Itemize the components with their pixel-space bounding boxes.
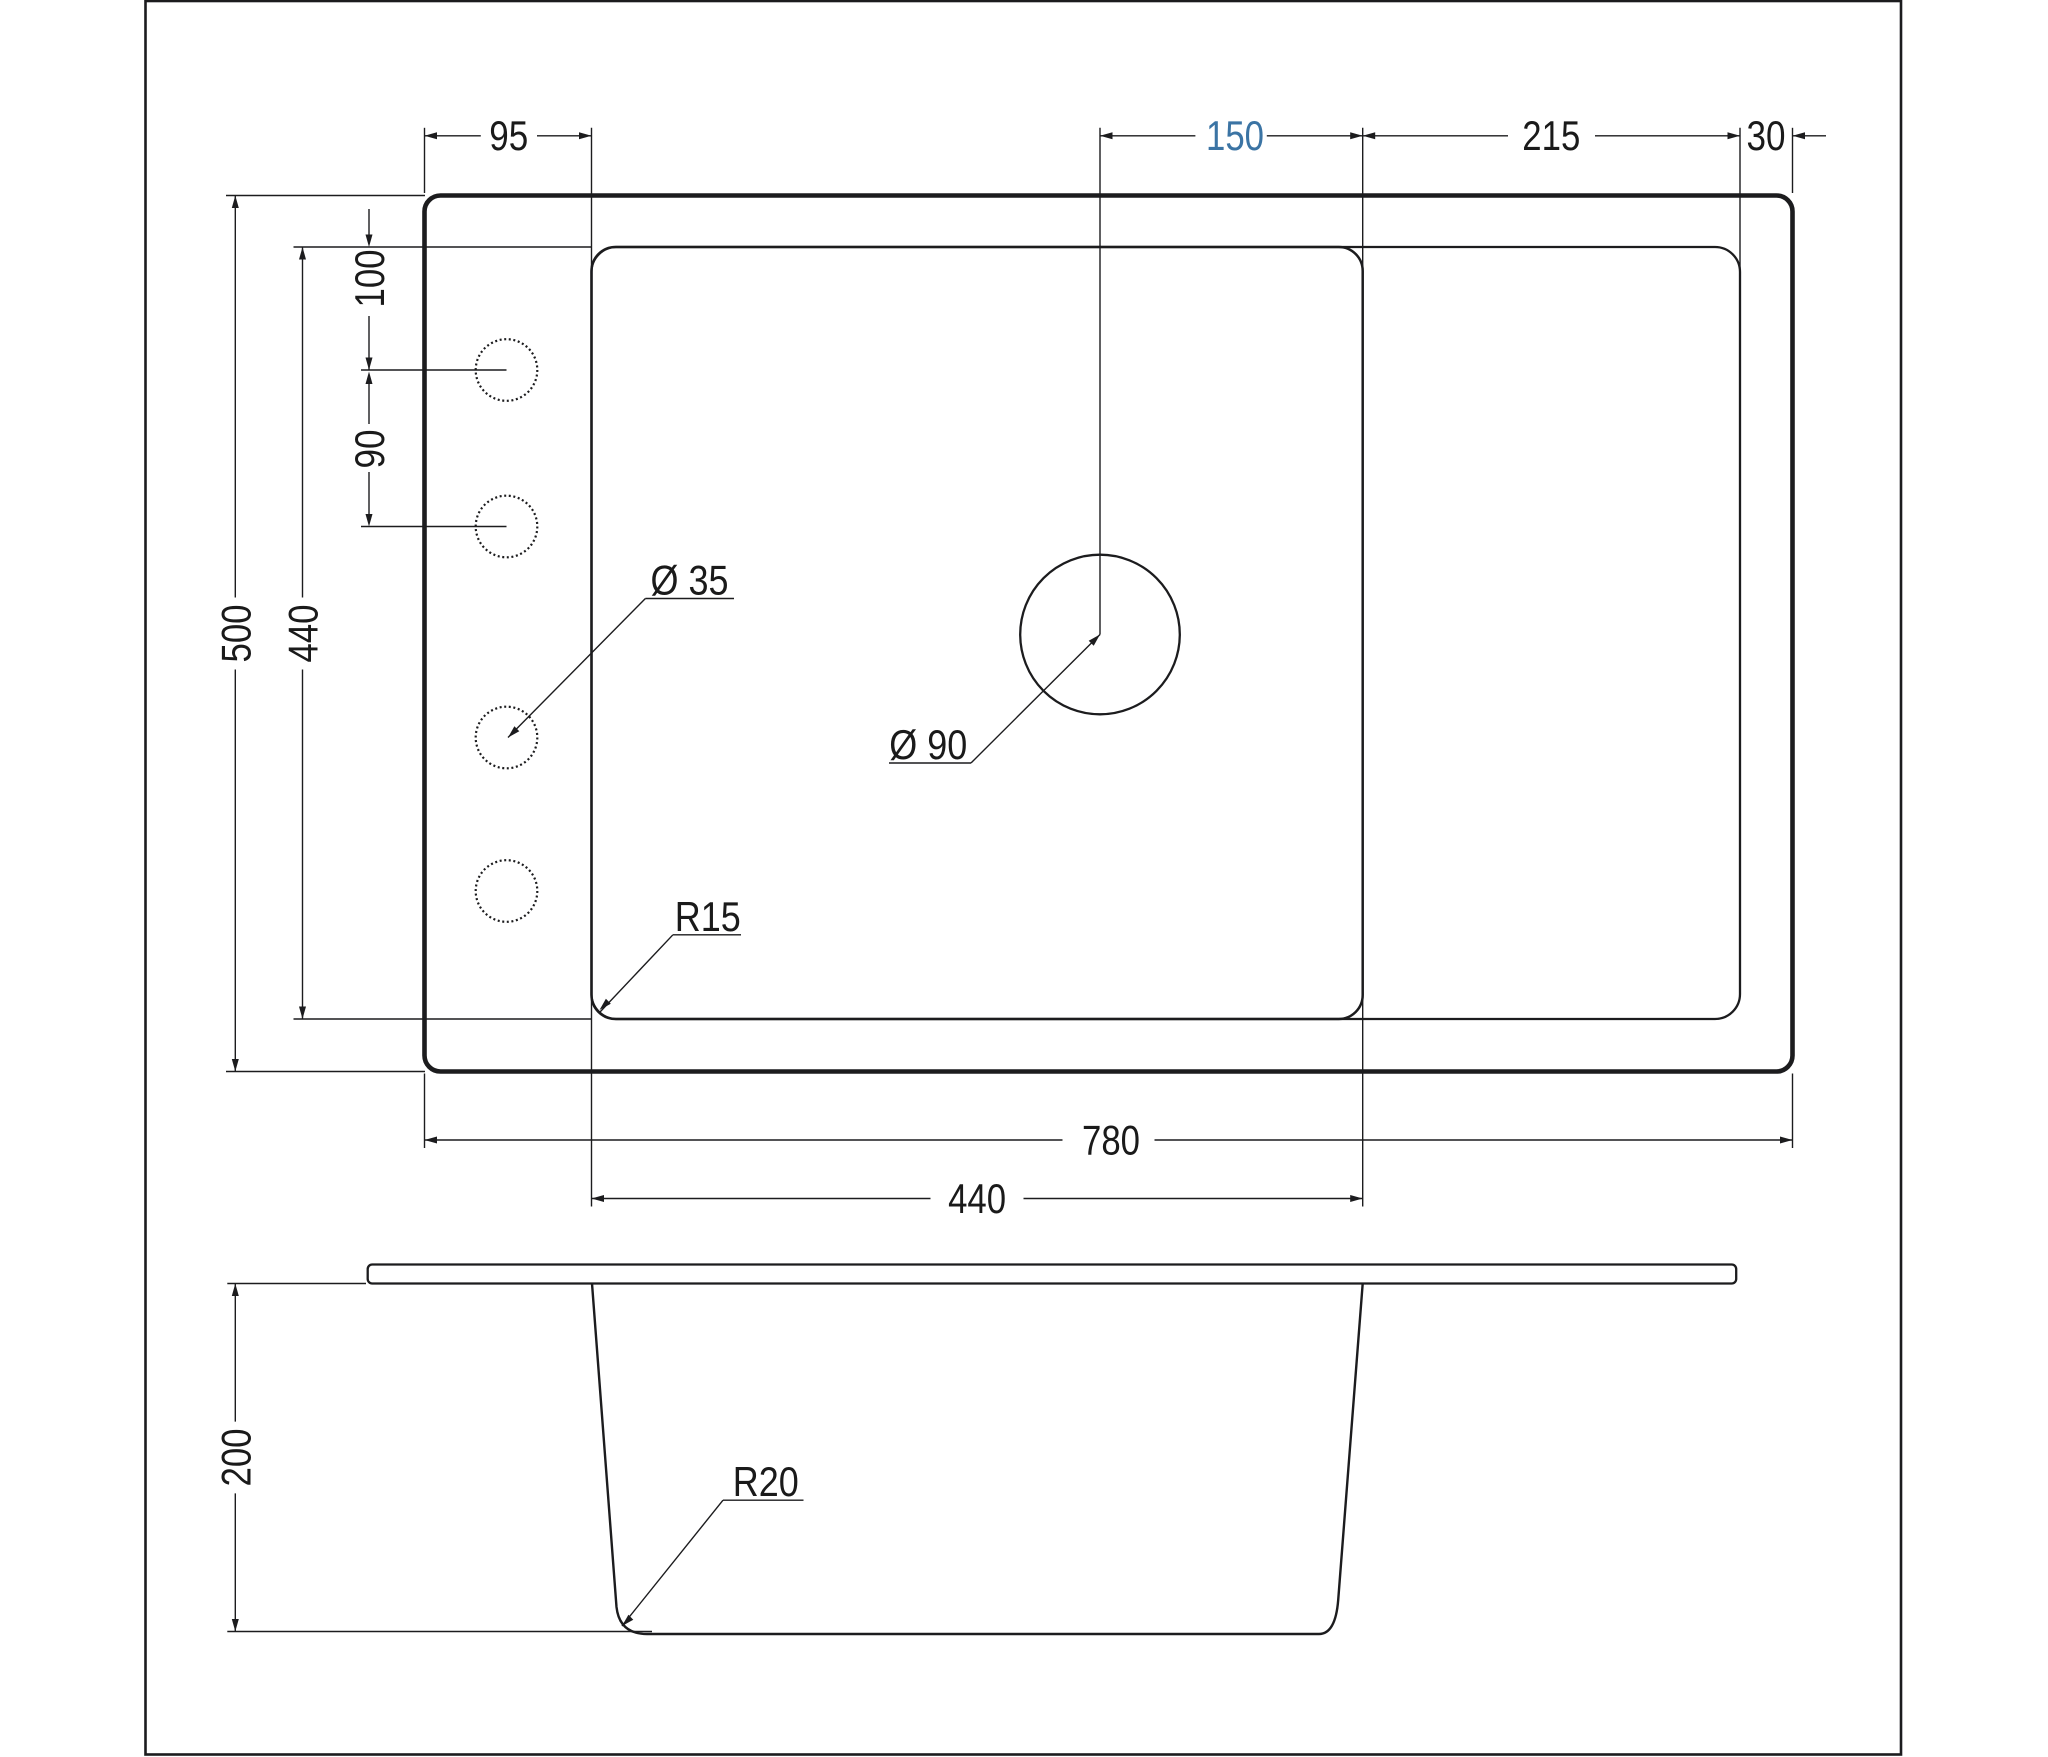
svg-text:Ø 90: Ø 90 [889, 721, 967, 768]
svg-text:440: 440 [948, 1175, 1006, 1222]
svg-text:90: 90 [346, 430, 393, 469]
svg-text:200: 200 [212, 1429, 259, 1487]
svg-text:30: 30 [1747, 112, 1786, 159]
svg-text:500: 500 [212, 605, 259, 663]
svg-text:Ø 35: Ø 35 [651, 557, 729, 604]
svg-text:780: 780 [1082, 1116, 1140, 1163]
svg-text:R15: R15 [675, 893, 741, 940]
svg-text:440: 440 [280, 605, 327, 663]
svg-text:R20: R20 [733, 1458, 799, 1505]
svg-text:95: 95 [489, 112, 528, 159]
svg-text:150: 150 [1206, 112, 1264, 159]
svg-text:215: 215 [1522, 112, 1580, 159]
svg-text:100: 100 [346, 250, 393, 308]
